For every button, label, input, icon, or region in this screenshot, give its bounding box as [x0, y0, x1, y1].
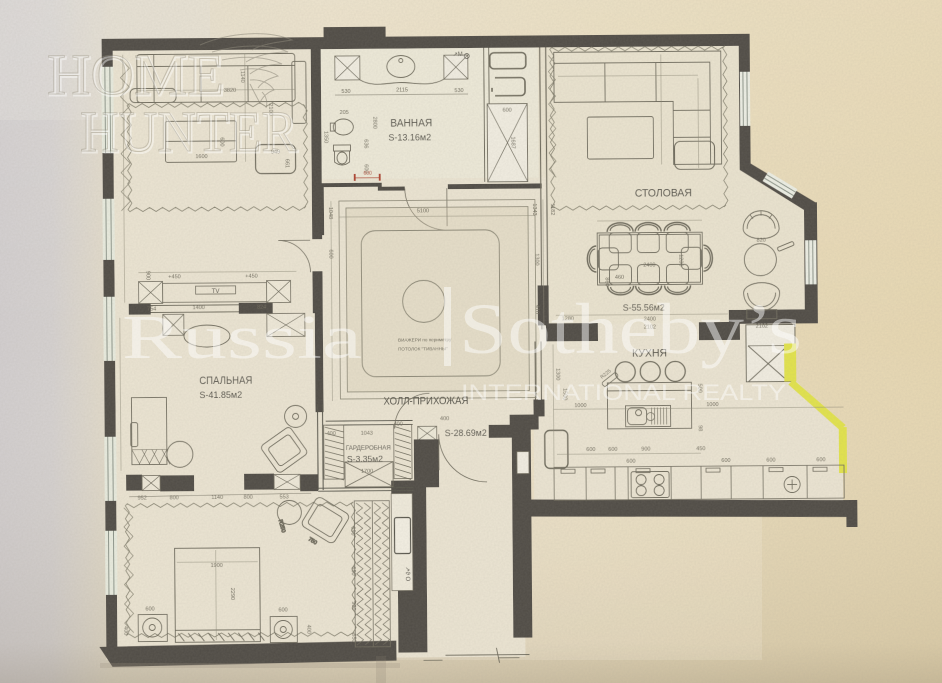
svg-text:Sotheby’s: Sotheby’s	[459, 289, 802, 369]
svg-text:Russia: Russia	[122, 304, 362, 372]
svg-text:HUNTER: HUNTER	[80, 99, 297, 164]
svg-text:INTERNATIONAL REALTY: INTERNATIONAL REALTY	[461, 380, 786, 405]
svg-text:HOME: HOME	[47, 42, 224, 107]
